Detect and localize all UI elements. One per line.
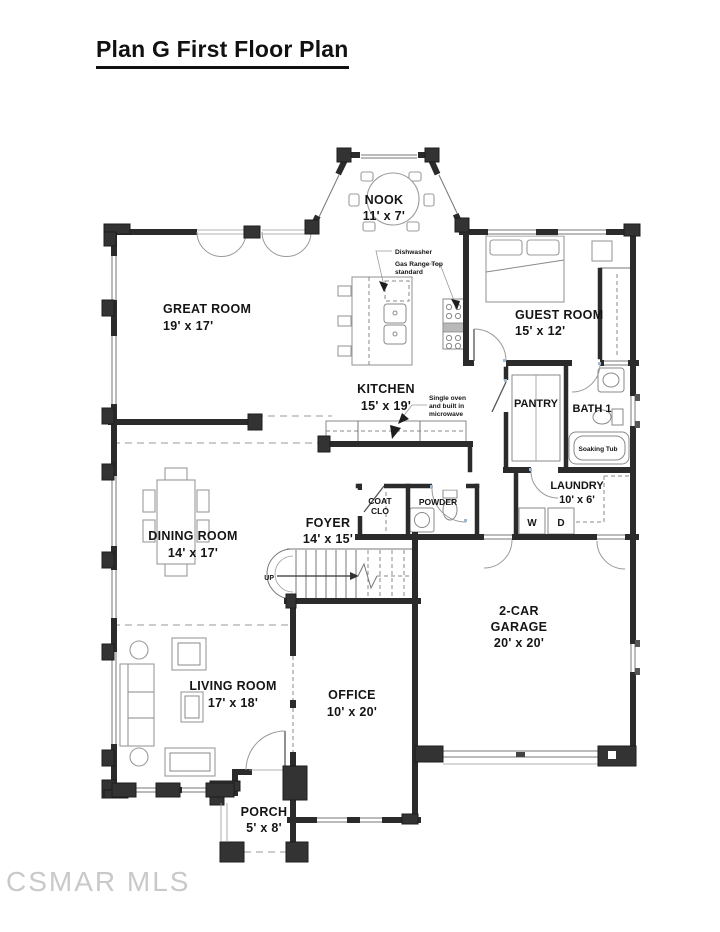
office-label: OFFICE — [328, 688, 376, 702]
garage-dims: 20' x 20' — [494, 636, 544, 650]
living-room-dims: 17' x 18' — [208, 696, 258, 710]
foyer-dims: 14' x 15' — [303, 532, 353, 546]
pantry-label: PANTRY — [514, 398, 559, 410]
dining-room-dims: 14' x 17' — [168, 546, 218, 560]
bath-1-label: BATH 1 — [573, 403, 612, 415]
oven-note-line1: Single oven — [429, 395, 466, 402]
office-dims: 10' x 20' — [327, 705, 377, 719]
kitchen-label: KITCHEN — [357, 382, 415, 396]
coat-closet-label-line1: COAT — [368, 496, 392, 506]
stairs-up-label: UP — [264, 575, 274, 582]
kitchen-dims: 15' x 19' — [361, 399, 411, 413]
guest-room-label: GUEST ROOM — [515, 308, 603, 322]
great-room-dims: 19' x 17' — [163, 319, 213, 333]
oven-note-line3: microwave — [429, 411, 463, 418]
gas-range-note-line2: standard — [395, 269, 423, 276]
guest-room-dims: 15' x 12' — [515, 324, 565, 338]
dishwasher-note: Dishwasher — [395, 249, 432, 256]
great-room-label: GREAT ROOM — [163, 302, 251, 316]
foyer-label: FOYER — [306, 516, 351, 530]
dryer-label: D — [557, 518, 564, 529]
dining-room-label: DINING ROOM — [148, 529, 237, 543]
laundry-dims: 10' x 6' — [559, 494, 595, 506]
gas-range — [443, 299, 464, 349]
nook-dims: 11' x 7' — [363, 209, 405, 223]
garage-label-line1: 2-CAR — [499, 604, 539, 618]
soaking-tub-label: Soaking Tub — [578, 446, 617, 453]
floor-plan-drawing: NOOK 11' x 7' GREAT ROOM 19' x 17' KITCH… — [0, 0, 720, 932]
guest-bed — [486, 236, 612, 302]
living-room-label: LIVING ROOM — [189, 679, 276, 693]
kitchen-island — [338, 277, 412, 365]
porch-dims: 5' x 8' — [246, 821, 282, 835]
guest-closet-rod — [600, 268, 633, 356]
kitchen-counter — [326, 421, 466, 442]
oven-note-line2: and built in — [429, 403, 464, 410]
coat-closet-label-line2: CLO — [371, 506, 389, 516]
gas-range-note-line1: Gas Range Top — [395, 261, 443, 268]
washer-label: W — [527, 518, 537, 529]
garage-label-line2: GARAGE — [491, 620, 548, 634]
pantry-shelves — [512, 375, 560, 461]
floor-plan-page: Plan G First Floor Plan — [0, 0, 720, 932]
staircase — [267, 549, 415, 599]
powder-label: POWDER — [419, 497, 457, 507]
laundry-label: LAUNDRY — [550, 480, 604, 492]
nook-label: NOOK — [365, 193, 404, 207]
porch-label: PORCH — [241, 805, 288, 819]
living-room-furniture — [120, 638, 215, 776]
mls-watermark: CSMAR MLS — [6, 866, 190, 898]
